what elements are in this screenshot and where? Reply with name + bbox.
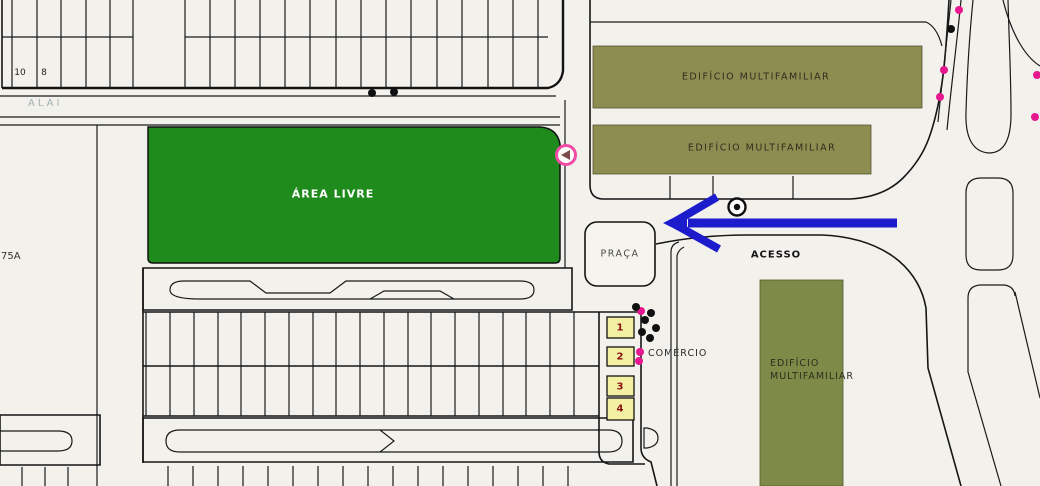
lot-grid-north <box>2 0 563 88</box>
building-right-label-line2: MULTIFAMILIAR <box>770 370 854 383</box>
site-plan-map: ALAI 10 8 75A ÁREA LIVRE EDIFÍCIO MULTIF… <box>0 0 1040 486</box>
parcel-northeast <box>590 0 942 199</box>
magenta-dot-marker <box>936 93 944 101</box>
building-multifamily-right <box>760 280 843 486</box>
black-dot-marker <box>632 303 640 311</box>
black-dot-marker <box>641 316 649 324</box>
building-right-label: EDIFÍCIO MULTIFAMILIAR <box>770 357 854 383</box>
commerce-unit-number-1: 1 <box>617 323 624 334</box>
building-right-label-line1: EDIFÍCIO <box>770 357 854 370</box>
black-dot-marker <box>368 89 376 97</box>
commerce-label: COMÉRCIO <box>648 348 707 359</box>
black-dot-marker <box>647 309 655 317</box>
access-label: ACESSO <box>751 250 801 261</box>
commerce-unit-number-2: 2 <box>617 352 624 363</box>
open-area-label: ÁREA LIVRE <box>292 188 374 201</box>
magenta-dot-marker <box>636 348 644 356</box>
plaza-label: PRAÇA <box>601 249 640 260</box>
circle-dot-icon <box>729 199 746 216</box>
black-dot-marker <box>638 328 646 336</box>
street-label-alai: ALAI <box>28 98 62 109</box>
site-plan-drawing <box>0 0 1040 486</box>
building-top-label: EDIFÍCIO MULTIFAMILIAR <box>682 72 830 83</box>
black-dot-marker <box>947 25 955 33</box>
magenta-dot-marker <box>955 6 963 14</box>
black-dot-marker <box>652 324 660 332</box>
commerce-unit-number-4: 4 <box>617 404 624 415</box>
black-dot-marker <box>390 88 398 96</box>
building-middle-label: EDIFÍCIO MULTIFAMILIAR <box>688 143 836 154</box>
pink-circle-marker-icon <box>557 146 576 165</box>
street-label-75a: 75A <box>1 251 21 262</box>
magenta-dot-marker <box>940 66 948 74</box>
magenta-dot-marker <box>635 357 643 365</box>
lot-number-8: 8 <box>41 68 47 78</box>
magenta-dot-marker <box>1033 71 1040 79</box>
magenta-dot-marker <box>1031 113 1039 121</box>
commerce-unit-number-3: 3 <box>617 382 624 393</box>
black-dot-marker <box>646 334 654 342</box>
lot-number-10: 10 <box>14 68 25 78</box>
block-rows-center <box>0 268 658 486</box>
